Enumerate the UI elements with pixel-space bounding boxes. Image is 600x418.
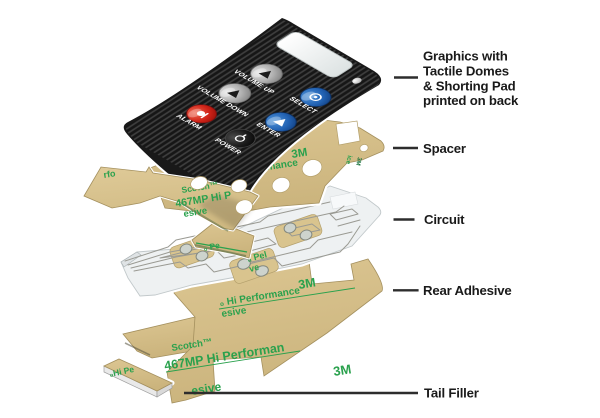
svg-text:Spacer: Spacer xyxy=(423,141,466,156)
svg-text:3M: 3M xyxy=(297,275,316,292)
svg-text:Tail Filler: Tail Filler xyxy=(424,386,479,401)
svg-text:& Shorting Pad: & Shorting Pad xyxy=(423,79,516,94)
svg-text:Graphics with: Graphics with xyxy=(423,49,508,64)
svg-text:rfo: rfo xyxy=(103,168,117,180)
svg-text:printed on back: printed on back xyxy=(423,93,519,108)
svg-text:3M: 3M xyxy=(332,361,352,379)
svg-text:Tactile Domes: Tactile Domes xyxy=(423,64,509,79)
svg-text:3M: 3M xyxy=(291,147,309,161)
svg-text:Rear Adhesive: Rear Adhesive xyxy=(423,283,512,298)
svg-text:Circuit: Circuit xyxy=(424,212,465,227)
